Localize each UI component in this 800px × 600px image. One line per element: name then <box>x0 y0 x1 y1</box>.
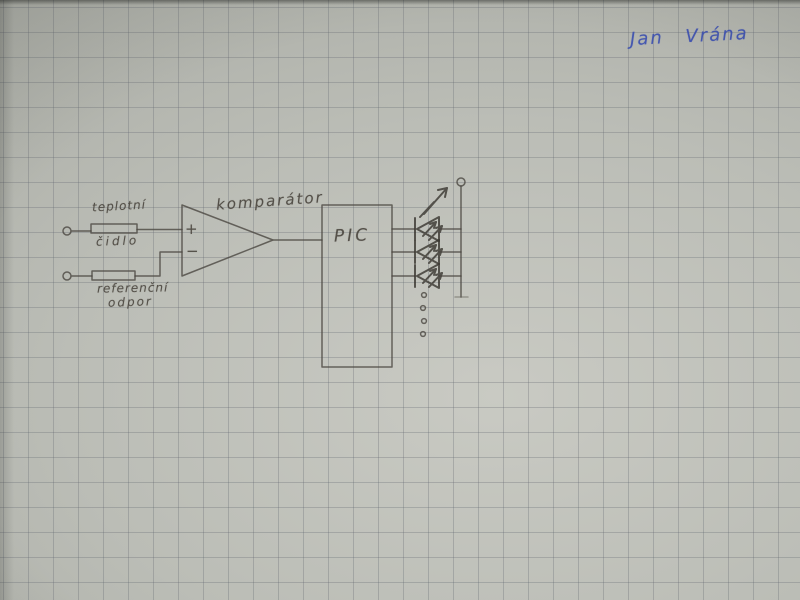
comparator-symbol <box>182 205 322 276</box>
comparator-plus-input-label: + <box>185 220 199 238</box>
label-pic: PIC <box>334 225 371 246</box>
more-outputs-dots-icon <box>421 293 427 337</box>
label-reference-resistor-line1: referenční <box>97 280 169 295</box>
pic-output-wires <box>392 229 415 276</box>
led-emission-arrow-icon <box>420 188 447 217</box>
temperature-sensor-resistor-icon <box>91 224 137 233</box>
input-terminal-top-icon <box>63 227 91 235</box>
led-common-bus <box>455 186 468 297</box>
led-3-icon <box>415 264 461 288</box>
graph-paper-photo: teplotní čidlo referenční odpor komparát… <box>0 0 800 600</box>
led-2-icon <box>415 240 461 264</box>
input-terminal-bottom-icon <box>63 272 92 280</box>
output-terminal-icon <box>457 178 465 186</box>
reference-resistor-icon <box>92 271 135 280</box>
label-reference-resistor-line2: odpor <box>108 294 153 310</box>
label-temperature-sensor-line1: teplotní <box>92 198 147 215</box>
comparator-minus-input-label: − <box>186 242 200 260</box>
wire-minus-input <box>135 252 182 276</box>
led-1-icon <box>415 217 461 241</box>
label-temperature-sensor-line2: čidlo <box>96 233 140 249</box>
